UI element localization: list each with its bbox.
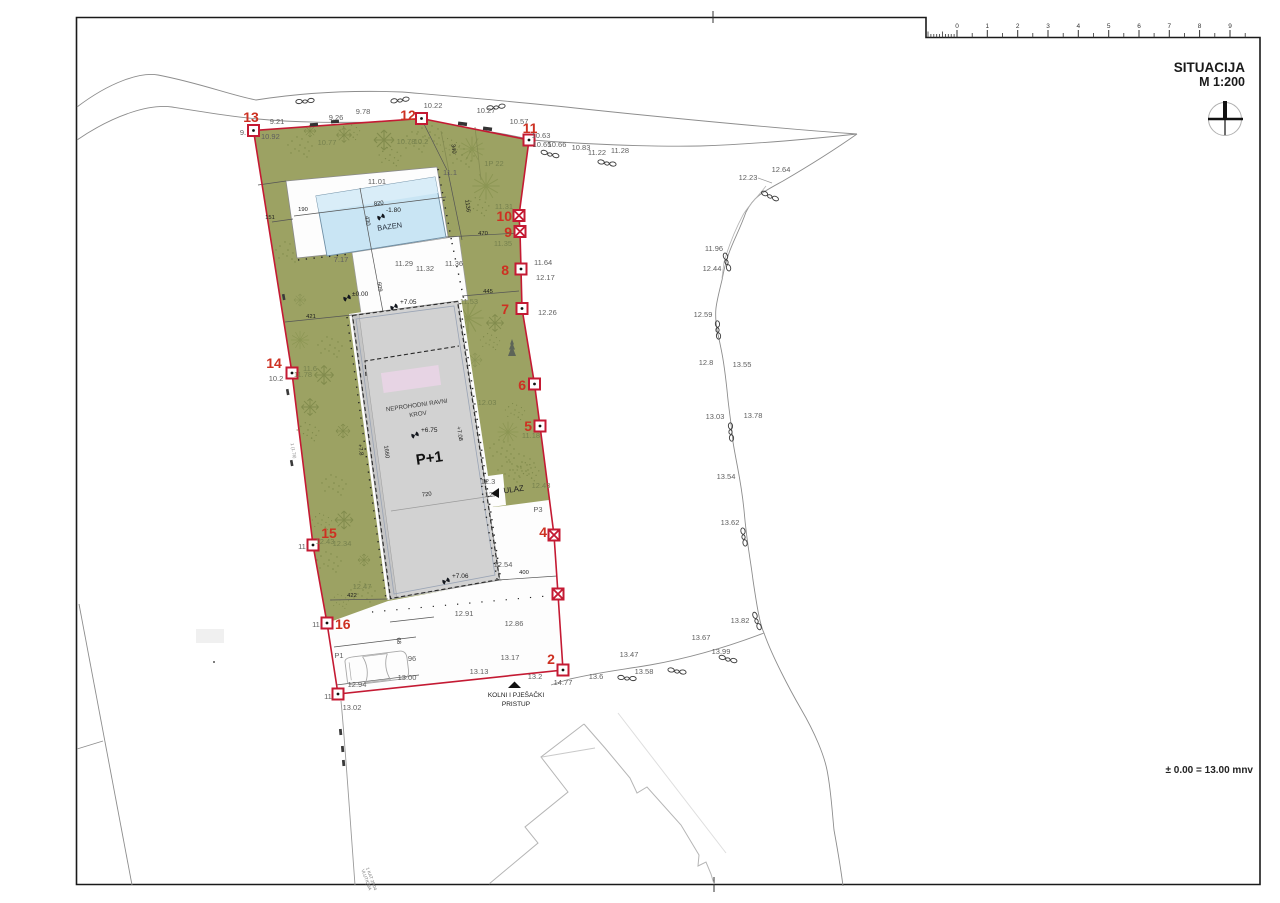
svg-text:340: 340: [449, 144, 456, 154]
svg-text:8: 8: [501, 262, 509, 278]
svg-text:68: 68: [395, 637, 402, 644]
svg-text:11.36: 11.36: [445, 259, 463, 268]
svg-text:445: 445: [483, 289, 493, 295]
svg-text:11.1: 11.1: [443, 168, 457, 177]
svg-text:10.22: 10.22: [424, 101, 443, 110]
svg-text:13.13: 13.13: [470, 667, 489, 676]
svg-text:12.86: 12.86: [505, 619, 524, 628]
svg-text:11.53: 11.53: [460, 297, 478, 306]
svg-text:13.2: 13.2: [528, 672, 543, 681]
svg-text:12.94: 12.94: [348, 680, 367, 689]
svg-text:9: 9: [504, 224, 512, 240]
svg-text:3: 3: [1046, 23, 1050, 30]
svg-text:609: 609: [375, 282, 382, 292]
svg-text:11.22: 11.22: [588, 148, 606, 157]
svg-text:13.03: 13.03: [706, 412, 725, 421]
svg-text:13.99: 13.99: [712, 647, 731, 656]
svg-text:13.54: 13.54: [717, 472, 736, 481]
svg-text:P3: P3: [533, 505, 542, 514]
svg-text:9.78: 9.78: [356, 107, 371, 116]
svg-text:13.6: 13.6: [589, 672, 604, 681]
svg-text:10.27: 10.27: [477, 106, 496, 115]
svg-text:12.8: 12.8: [699, 358, 714, 367]
svg-text:12.03: 12.03: [478, 398, 497, 407]
svg-text:10.57: 10.57: [510, 117, 529, 126]
svg-text:11.: 11.: [324, 692, 334, 701]
svg-text:8: 8: [1198, 23, 1202, 30]
svg-text:5: 5: [1107, 23, 1111, 30]
svg-text:11.31: 11.31: [495, 202, 513, 211]
svg-text:13.58: 13.58: [635, 667, 654, 676]
svg-text:12.3: 12.3: [481, 477, 496, 486]
svg-text:96: 96: [408, 654, 416, 663]
svg-text:11.29: 11.29: [395, 259, 413, 268]
svg-text:12.34: 12.34: [333, 539, 352, 548]
svg-text:12.59: 12.59: [694, 310, 713, 319]
svg-text:0: 0: [955, 23, 959, 30]
svg-text:190: 190: [298, 207, 308, 213]
svg-text:9.21: 9.21: [270, 117, 285, 126]
svg-text:12.91: 12.91: [455, 609, 474, 618]
svg-text:7.17: 7.17: [334, 255, 349, 264]
svg-text:16: 16: [335, 616, 351, 632]
svg-text:±0.00: ±0.00: [352, 291, 369, 298]
svg-text:12.17: 12.17: [536, 273, 555, 282]
svg-text:9: 9: [1228, 23, 1232, 30]
svg-text:11.35: 11.35: [494, 239, 512, 248]
svg-text:11.64: 11.64: [534, 258, 552, 267]
svg-text:13.17: 13.17: [501, 653, 520, 662]
svg-text:470: 470: [478, 231, 488, 237]
svg-text:10.2: 10.2: [414, 137, 429, 146]
svg-text:6: 6: [518, 377, 526, 393]
svg-text:430: 430: [363, 216, 370, 226]
svg-text:11.78: 11.78: [294, 370, 312, 379]
svg-text:13.67: 13.67: [692, 633, 711, 642]
svg-text:13.78: 13.78: [744, 411, 763, 420]
svg-text:12.43: 12.43: [532, 481, 551, 490]
svg-text:6: 6: [1137, 23, 1141, 30]
svg-text:M 1:200: M 1:200: [1199, 75, 1245, 89]
svg-text:13.00: 13.00: [398, 673, 417, 682]
svg-text:10.66: 10.66: [548, 140, 567, 149]
svg-text:11.: 11.: [298, 542, 308, 551]
svg-text:13.02: 13.02: [343, 703, 362, 712]
svg-text:13.47: 13.47: [620, 650, 639, 659]
svg-text:12.43: 12.43: [316, 537, 335, 546]
svg-text:+7.05: +7.05: [400, 299, 417, 306]
svg-text:9.: 9.: [240, 128, 246, 137]
svg-text:12.47: 12.47: [353, 582, 372, 591]
svg-text:11.18: 11.18: [522, 431, 540, 440]
svg-text:10.92: 10.92: [261, 132, 280, 141]
svg-text:SITUACIJA: SITUACIJA: [1174, 60, 1246, 75]
svg-text:11.: 11.: [312, 620, 322, 629]
svg-text:12.64: 12.64: [772, 165, 791, 174]
svg-text:13.82: 13.82: [731, 616, 750, 625]
svg-text:421: 421: [306, 314, 316, 320]
svg-text:11.32: 11.32: [416, 264, 434, 273]
svg-text:13.62: 13.62: [721, 518, 740, 527]
svg-text:4: 4: [539, 524, 547, 540]
svg-text:10.2: 10.2: [269, 374, 284, 383]
svg-text:13.55: 13.55: [733, 360, 752, 369]
svg-text:1: 1: [985, 23, 989, 30]
svg-text:11.28: 11.28: [611, 146, 629, 155]
svg-text:12.23: 12.23: [739, 173, 758, 182]
svg-text:± 0.00 = 13.00 mnv: ± 0.00 = 13.00 mnv: [1166, 765, 1254, 776]
svg-text:7: 7: [501, 301, 509, 317]
svg-text:10.77: 10.77: [318, 138, 337, 147]
svg-text:151: 151: [265, 215, 275, 221]
svg-text:14: 14: [266, 355, 282, 371]
svg-text:422: 422: [347, 593, 357, 599]
svg-text:9.26: 9.26: [329, 113, 344, 122]
svg-text:2: 2: [547, 651, 555, 667]
svg-text:2: 2: [1016, 23, 1020, 30]
svg-text:12.54: 12.54: [494, 560, 513, 569]
svg-text:4: 4: [1076, 23, 1080, 30]
svg-text:PRISTUP: PRISTUP: [502, 701, 530, 708]
svg-text:13: 13: [243, 109, 259, 125]
svg-text:11.96: 11.96: [705, 244, 723, 253]
svg-text:+6.75: +6.75: [421, 427, 438, 434]
svg-text:11.01: 11.01: [368, 177, 386, 186]
svg-text:P1: P1: [334, 651, 343, 660]
svg-text:KOLNI I PJEŠAČKI: KOLNI I PJEŠAČKI: [488, 690, 545, 699]
svg-text:12: 12: [400, 107, 416, 123]
svg-text:-1.80: -1.80: [386, 207, 401, 214]
svg-text:+7.06: +7.06: [452, 573, 469, 580]
svg-text:10.78: 10.78: [397, 137, 416, 146]
svg-text:12.26: 12.26: [538, 308, 557, 317]
svg-text:12.44: 12.44: [703, 264, 722, 273]
svg-text:10.63: 10.63: [532, 131, 551, 140]
svg-text:14.77: 14.77: [554, 678, 573, 687]
svg-text:7: 7: [1167, 23, 1171, 30]
svg-text:400: 400: [519, 570, 529, 576]
svg-text:1P 22: 1P 22: [484, 159, 503, 168]
